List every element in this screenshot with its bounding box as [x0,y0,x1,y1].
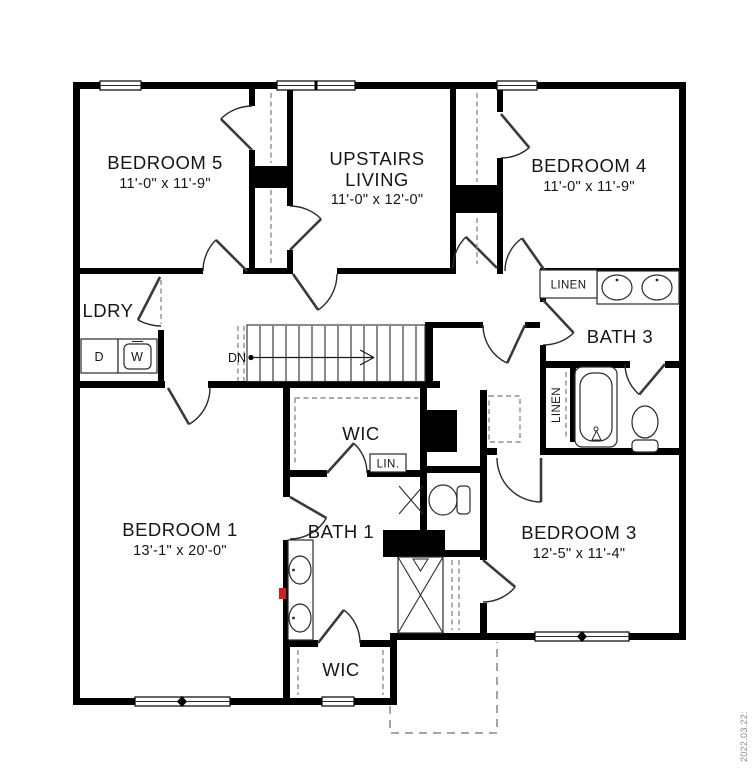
wic-center-name: WIC [342,423,379,444]
bath1-vanity [288,540,313,640]
linen-bath3-label: LINEN [551,387,563,423]
window-bedroom4 [497,81,537,90]
bath3-name: BATH 3 [587,326,653,347]
upstairs-living-name-1: UPSTAIRS [329,148,424,169]
bath3-tub [575,367,617,447]
bedroom1-name: BEDROOM 1 [122,519,238,540]
bath3-vanity [597,271,679,304]
linen-small-cabinet: LIN. [370,454,406,472]
date-stamp: 2022.03.22: [739,711,749,762]
washer-label: W [131,350,143,364]
red-marker [279,588,286,599]
bath1-name: BATH 1 [308,521,374,542]
linen-hall-cabinet: LINEN [540,270,597,298]
linen-small-label: LIN. [377,459,400,471]
laundry-name: LDRY [82,300,133,321]
bath3-toilet [632,406,658,452]
dryer-label: D [94,350,103,364]
bath1-shower [398,557,443,633]
upstairs-living-dims: 11'-0" x 12'-0" [331,192,424,208]
bath1-toilet [429,485,470,515]
floorplan-page: DN [0,0,755,768]
window-bedroom5 [100,81,141,90]
laundry-appliances: D W [81,339,157,373]
linen-hall-label: LINEN [551,280,587,292]
stairs-dn-label: DN [228,351,246,365]
bedroom5-name: BEDROOM 5 [107,152,223,173]
bedroom4-dims: 11'-0" x 11'-9" [543,179,635,195]
wic-bottom-name: WIC [322,659,359,680]
window-wic-bottom [322,697,354,706]
bedroom3-dims: 12'-5" x 11'-4" [533,546,626,562]
bedroom4-name: BEDROOM 4 [531,155,647,176]
bedroom3-name: BEDROOM 3 [521,522,637,543]
bedroom1-dims: 13'-1" x 20'-0" [133,543,227,559]
upstairs-living-name-2: LIVING [345,169,409,190]
window-upstairs-living [277,81,355,90]
bedroom5-dims: 11'-0" x 11'-9" [119,176,211,192]
window-bedroom1 [135,696,230,707]
window-bedroom3 [535,631,629,642]
floorplan-drawing: DN [0,0,755,768]
